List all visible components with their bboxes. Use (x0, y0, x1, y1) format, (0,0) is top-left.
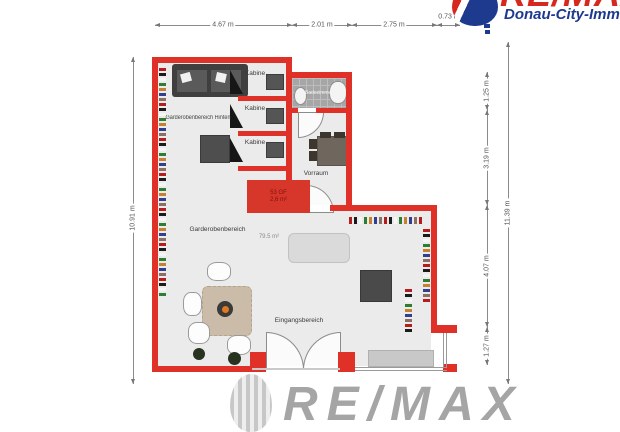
wall-left (152, 57, 158, 372)
dim-label-right-total: 11.39 m (505, 199, 512, 228)
clothing-item (423, 259, 430, 262)
wall-top (152, 57, 292, 63)
clothing-item (159, 108, 166, 111)
wall-bath-bottom-b (316, 108, 346, 113)
stair-label-line1: 53 GF (247, 190, 310, 197)
clothing-item (159, 123, 166, 126)
clothing-item (159, 98, 166, 101)
dim-label-left: 10.91 m (130, 203, 137, 232)
wall-cabin-bottom (238, 166, 292, 171)
clothing-item (159, 203, 166, 206)
clothing-item (159, 218, 166, 221)
clothing-item (159, 158, 166, 161)
shop-window-side (446, 333, 447, 367)
shop-window (355, 367, 447, 368)
clothing-item (159, 68, 166, 71)
clothing-item (159, 73, 166, 76)
armchair (188, 322, 210, 344)
clothing-item (159, 283, 166, 286)
clothing-item (159, 278, 166, 281)
floor-plan-page: { "branding": { "logo_top": { "wordmark"… (0, 0, 620, 410)
clothing-item (159, 78, 166, 81)
wall-right-stub (431, 325, 457, 333)
remax-subtitle: Donau-City-Immobilien (504, 6, 620, 23)
dim-label-right-4: 1.27 m (484, 333, 491, 358)
clothing-item (405, 289, 412, 292)
dim-label-right-1: 1.25 m (484, 78, 491, 103)
clothing-item (159, 193, 166, 196)
coat-rack-top (349, 217, 422, 224)
dim-label-top-2: 2.01 m (309, 22, 334, 29)
clothing-item (423, 279, 430, 282)
remax-balloon-icon (485, 30, 490, 34)
coat-rack-right (423, 229, 430, 302)
label-kabine-3: Kabine (240, 139, 270, 147)
clothing-item (405, 304, 412, 307)
clothing-item (369, 217, 372, 224)
shop-window (355, 370, 447, 371)
dining-table (317, 136, 348, 166)
remax-balloon-icon (484, 24, 490, 28)
clothing-item (423, 244, 430, 247)
clothing-item (159, 93, 166, 96)
clothing-item (159, 148, 166, 151)
dim-label-top-3: 2.75 m (381, 22, 406, 29)
clothing-item (389, 217, 392, 224)
clothing-item (159, 88, 166, 91)
wall-cabin-divider (238, 131, 286, 136)
clothing-item (374, 217, 377, 224)
clothing-item (409, 217, 412, 224)
clothing-item (159, 238, 166, 241)
wall-cabin-divider (238, 96, 286, 101)
clothing-item (159, 268, 166, 271)
clothing-item (159, 103, 166, 106)
label-kabine-1: Kabine (240, 70, 270, 78)
label-garderobe-area: 79.5 m² (252, 233, 286, 241)
clothing-item (423, 264, 430, 267)
label-vorraum: Vorraum (300, 170, 332, 178)
clothing-item (159, 228, 166, 231)
dining-chair (334, 132, 345, 138)
door-threshold (252, 368, 340, 370)
clothing-item (159, 143, 166, 146)
label-kabine-2: Kabine (240, 105, 270, 113)
stair-label-line2: 2,6 m² (247, 197, 310, 204)
plant (228, 352, 241, 365)
clothing-item (423, 289, 430, 292)
wall-bottom-left (152, 366, 252, 372)
clothing-item (394, 217, 397, 224)
shop-window-side (443, 333, 444, 367)
dim-label-top-1: 4.67 m (210, 22, 235, 29)
clothing-item (159, 273, 166, 276)
clothing-item (354, 217, 357, 224)
clothing-item (159, 178, 166, 181)
wall-main-top (346, 205, 437, 211)
clothing-item (159, 83, 166, 86)
clothing-item (159, 168, 166, 171)
window-bench (368, 350, 434, 367)
clothing-item (423, 269, 430, 272)
coat-rack-left (159, 68, 166, 296)
dining-chair (309, 139, 317, 149)
clothing-item (379, 217, 382, 224)
dining-chair (309, 151, 317, 161)
wall-vorraum-bottom-b (330, 205, 346, 211)
clothing-item (419, 217, 422, 224)
table-decor (222, 306, 229, 313)
clothing-item (159, 248, 166, 251)
clothing-item (349, 217, 352, 224)
clothing-item (364, 217, 367, 224)
display-table-lower (360, 270, 392, 302)
dim-label-right-2: 3.19 m (484, 145, 491, 170)
wall-bath-top (286, 72, 352, 78)
clothing-item (423, 229, 430, 232)
armchair (207, 262, 231, 281)
clothing-item (159, 138, 166, 141)
clothing-item (159, 233, 166, 236)
display-table-upper (200, 135, 230, 163)
clothing-item (159, 153, 166, 156)
clothing-item (159, 133, 166, 136)
clothing-item (159, 253, 166, 256)
clothing-item (414, 217, 417, 224)
clothing-item (159, 263, 166, 266)
clothing-item (423, 239, 430, 242)
clothing-item (423, 284, 430, 287)
remax-watermark-wordmark: RE/MAX (283, 377, 524, 432)
clothing-item (159, 188, 166, 191)
clothing-item (159, 223, 166, 226)
clothing-item (159, 288, 166, 291)
clothing-item (159, 163, 166, 166)
clothing-item (423, 294, 430, 297)
clothing-item (405, 299, 412, 302)
wall-bath-right (346, 72, 352, 211)
dim-line (437, 25, 460, 26)
dining-chair (320, 132, 331, 138)
remax-balloon-watermark-icon (230, 374, 272, 432)
clothing-item (159, 173, 166, 176)
clothing-item (159, 258, 166, 261)
clothing-item (159, 128, 166, 131)
dim-label-right-3: 4.07 m (484, 253, 491, 278)
clothing-item (159, 213, 166, 216)
wall-bath-bottom-a (292, 108, 298, 113)
label-eingangsbereich: Eingangsbereich (268, 317, 330, 325)
clothing-item (423, 234, 430, 237)
entrance-post-right (338, 352, 355, 372)
plant (193, 348, 205, 360)
clothing-item (423, 299, 430, 302)
label-garderobe-hinten: Garderobenbereich Hinten (159, 114, 236, 122)
label-badezimmer: Badezimmer (298, 89, 339, 97)
sofa-pillow (215, 72, 227, 83)
clothing-item (159, 243, 166, 246)
clothing-item (159, 208, 166, 211)
coat-rack-middle (405, 289, 412, 332)
clothing-item (404, 217, 407, 224)
clothing-item (159, 198, 166, 201)
clothing-item (159, 293, 166, 296)
counter (288, 233, 350, 263)
clothing-item (405, 324, 412, 327)
clothing-item (405, 314, 412, 317)
clothing-item (423, 274, 430, 277)
clothing-item (405, 309, 412, 312)
clothing-item (405, 294, 412, 297)
label-garderobe: Garderobenbereich (175, 226, 260, 234)
clothing-item (405, 329, 412, 332)
wall-right (431, 205, 437, 332)
stair-block: 53 GF 2,6 m² (247, 180, 310, 213)
clothing-item (159, 183, 166, 186)
armchair (183, 292, 202, 316)
floor-plan: 53 GF 2,6 m² Garderobenbereich Hinten Ka… (0, 0, 620, 410)
clothing-item (423, 254, 430, 257)
clothing-item (399, 217, 402, 224)
clothing-item (405, 319, 412, 322)
clothing-item (423, 249, 430, 252)
clothing-item (384, 217, 387, 224)
clothing-item (359, 217, 362, 224)
